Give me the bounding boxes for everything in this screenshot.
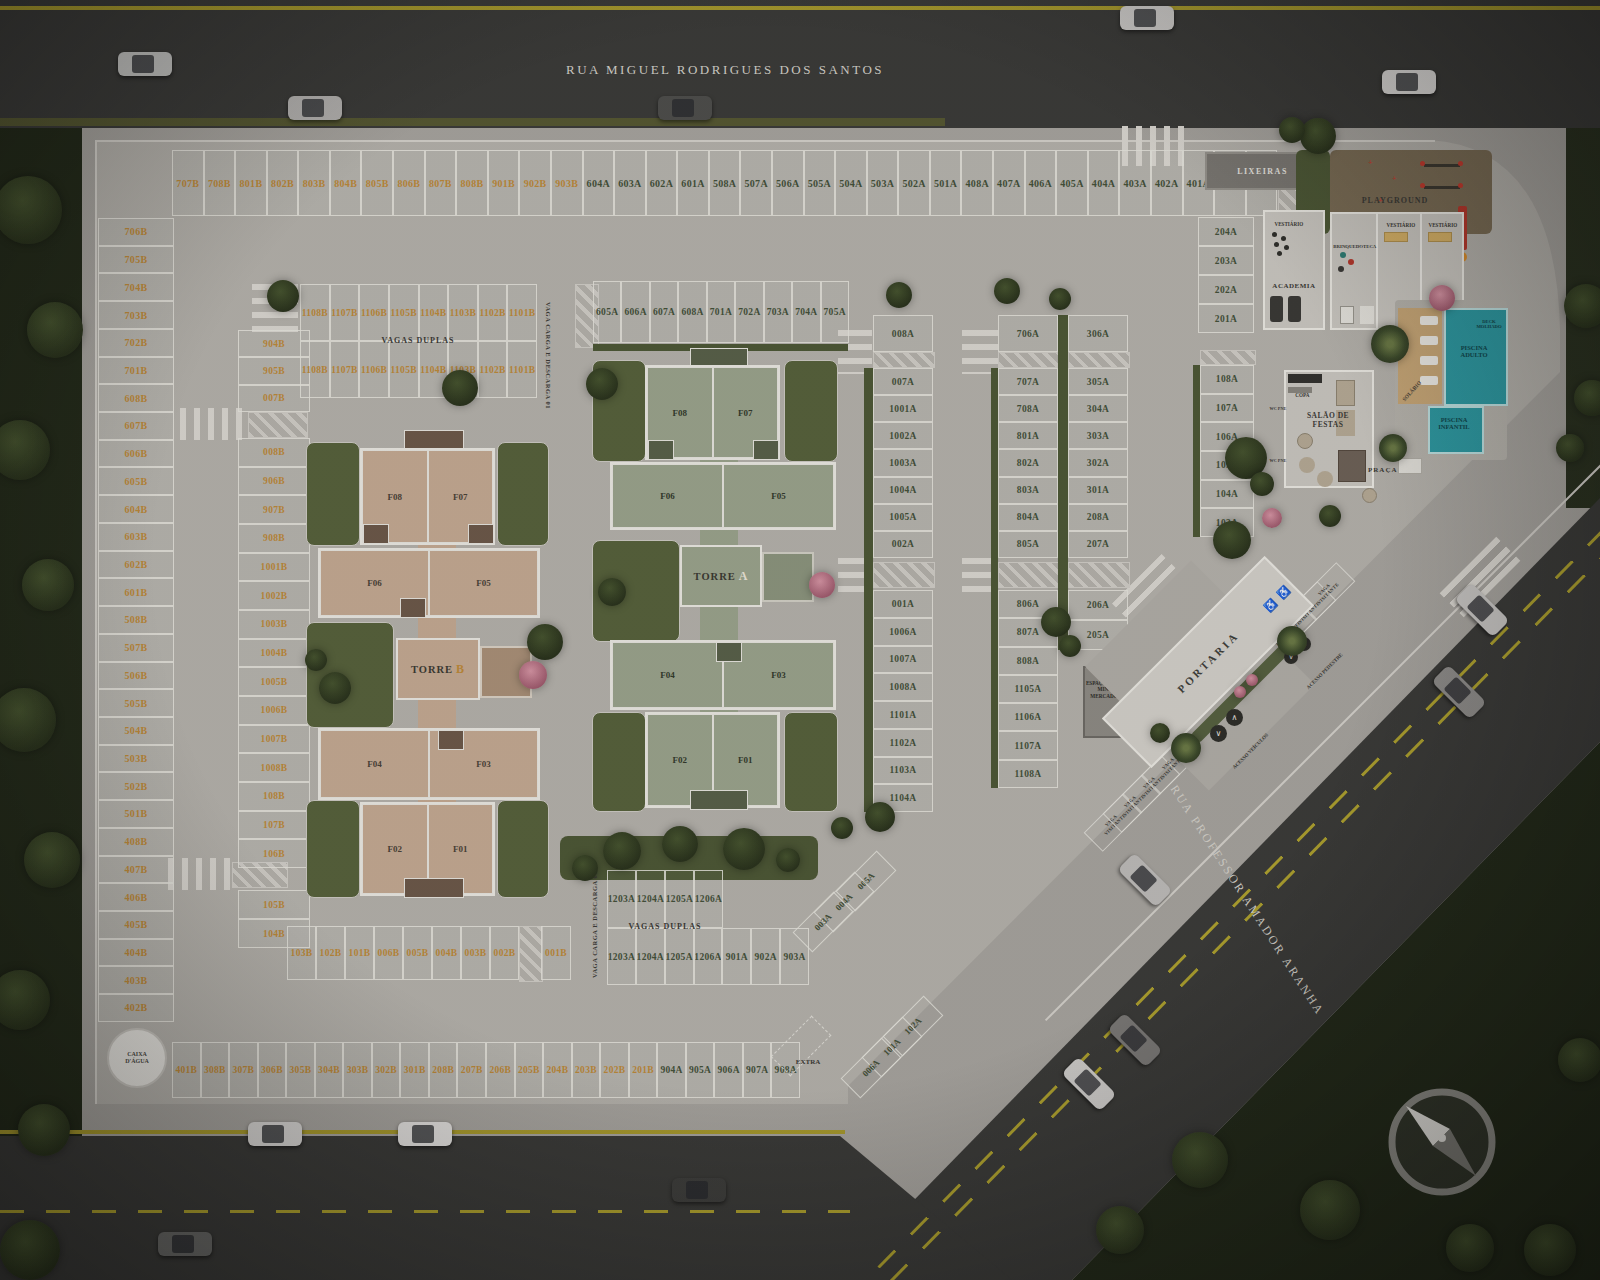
tree	[1096, 1206, 1144, 1254]
torre-b-label: TORRE B	[398, 640, 478, 698]
parking-stall: 1106A	[998, 703, 1058, 731]
brinquedoteca-label: BRINQUEDOTECA	[1333, 244, 1376, 249]
parking-stall: 1108A	[998, 760, 1058, 788]
parking-stall: 1205A	[665, 870, 694, 928]
tree	[1300, 1180, 1360, 1240]
salao-de-festas-label: SALÃO DE FESTAS	[1300, 412, 1356, 429]
parking-stall: 101B	[345, 926, 374, 980]
flower-bush	[809, 572, 835, 598]
sofa-icon	[1338, 450, 1366, 482]
tree	[0, 1220, 60, 1280]
hedge	[1193, 365, 1200, 537]
parking-stall: 906B	[238, 467, 310, 496]
parking-stall: 1003A	[873, 449, 933, 476]
tree	[1300, 118, 1336, 154]
parking-stall: 701B	[98, 357, 174, 385]
parking-stall: 1108B	[300, 284, 330, 341]
parking-stall: 1005A	[873, 504, 933, 531]
unit-label: F06	[612, 464, 723, 528]
parking-stall: 104A	[1200, 480, 1254, 509]
parking-stall: 305A	[1068, 368, 1128, 395]
parking-stall: 001B	[541, 926, 571, 980]
parking-col-left: 706B705B704B703B702B701B608B607B606B605B…	[98, 218, 174, 1022]
parking-duplas1-row1: 1108B1107B1106B1105B1104B1103B1102B1101B	[300, 284, 537, 341]
lounger-icon	[1420, 316, 1438, 325]
parking-stall: 807B	[425, 150, 457, 216]
parking-stall: 606B	[98, 440, 174, 468]
vestiario-label: VESTIÁRIO	[1275, 221, 1304, 226]
fence-top	[95, 140, 1435, 142]
torre-letter: A	[739, 569, 749, 584]
flower-bush	[519, 661, 547, 689]
parking-stall: 1003B	[238, 610, 310, 639]
parking-stall: 404A	[1088, 150, 1120, 216]
parking-stall: 308B	[201, 1042, 230, 1098]
car	[1382, 70, 1436, 94]
parking-stall: 107B	[238, 811, 310, 840]
parking-stall: 1102B	[478, 284, 508, 341]
parking-stall: 201B	[629, 1042, 658, 1098]
parking-stall: 306A	[1068, 315, 1128, 352]
parking-stall: 706B	[98, 218, 174, 246]
parking-stall: 1008A	[873, 673, 933, 701]
tree	[1059, 635, 1081, 657]
lawn	[784, 360, 838, 462]
parking-stall: 202A	[1198, 275, 1254, 304]
compass	[1382, 1082, 1502, 1202]
parking-stall: 705A	[821, 281, 849, 343]
parking-stall: 901A	[722, 928, 751, 985]
car	[672, 1178, 726, 1202]
no-parking-hatch	[1068, 562, 1130, 588]
parking-stall: 408A	[961, 150, 993, 216]
parking-stall: 402A	[1151, 150, 1183, 216]
parking-stall: 908B	[238, 524, 310, 553]
car-windshield	[672, 99, 694, 117]
parking-stall: 702A	[735, 281, 763, 343]
parking-stall: 701A	[707, 281, 735, 343]
wc-pne-label: WC PNE	[1270, 407, 1287, 411]
yellow-dash-bottom	[0, 1210, 850, 1213]
parking-stall: 207A	[1068, 531, 1128, 558]
tree	[1319, 505, 1341, 527]
parking-stall: 1008B	[238, 753, 310, 782]
parking-stall: 501B	[98, 800, 174, 828]
parking-stall: 203A	[1198, 246, 1254, 275]
street-name-top: RUA MIGUEL RODRIGUES DOS SANTOS	[500, 62, 950, 78]
parking-stall: 302A	[1068, 449, 1128, 476]
torre-a-block-upper: F06 F05	[610, 462, 836, 530]
parking-stall: 608A	[678, 281, 706, 343]
crosswalk	[180, 408, 244, 440]
tree	[1279, 117, 1305, 143]
parking-stall: 604A	[583, 150, 615, 216]
parking-stall: 507A	[740, 150, 772, 216]
parking-stall: 1107B	[330, 284, 360, 341]
parking-stall: 1105B	[389, 341, 419, 398]
round-table-icon	[1297, 433, 1313, 449]
parking-stall: 303B	[343, 1042, 372, 1098]
roof-notch	[753, 440, 779, 460]
parking-stall: 903B	[551, 150, 583, 216]
parking-stall: 505B	[98, 689, 174, 717]
no-parking-hatch	[248, 412, 308, 438]
parking-stall: 408B	[98, 828, 174, 856]
parking-stall: 801A	[998, 422, 1058, 449]
parking-stall: 103B	[287, 926, 316, 980]
tree	[305, 649, 327, 671]
parking-stall: 502B	[98, 772, 174, 800]
tree	[319, 672, 351, 704]
parking-stall: 707A	[998, 368, 1058, 395]
parking-stall: 002A	[873, 531, 933, 558]
parking-stall: 603B	[98, 523, 174, 551]
parking-stall: 802B	[267, 150, 299, 216]
car	[288, 96, 342, 120]
no-parking-hatch	[519, 926, 543, 982]
carga-descarga-01-label: VAGA CARGA E DESCARGA 01	[545, 271, 552, 441]
tree	[994, 278, 1020, 304]
parking-duplas2-row1: 1203A1204A1205A1206A	[607, 870, 723, 928]
parking-stall-001b: 001B	[541, 926, 571, 980]
parking-stall: 204A	[1198, 217, 1254, 246]
parking-stall: 1102A	[873, 729, 933, 757]
parking-stall: 607B	[98, 412, 174, 440]
tree	[776, 848, 800, 872]
parking-stall: 902B	[519, 150, 551, 216]
tree	[1250, 472, 1274, 496]
hedge	[864, 368, 873, 812]
tree	[1556, 434, 1584, 462]
parking-stall: 303A	[1068, 422, 1128, 449]
parking-stall: 002B	[490, 926, 519, 980]
car-windshield	[1396, 73, 1418, 91]
wc-fixtures-icon	[1340, 306, 1354, 324]
parking-stall: 402B	[98, 994, 174, 1022]
parking-stall: 803A	[998, 477, 1058, 504]
parking-stall: 507B	[98, 634, 174, 662]
torre-b-block-lower: F04 F03	[318, 728, 540, 800]
parking-stall: 403B	[98, 966, 174, 994]
parking-stall: 508A	[709, 150, 741, 216]
flower-bush	[1234, 686, 1246, 698]
tree	[1446, 1224, 1494, 1272]
parking-stall: 407A	[993, 150, 1025, 216]
parking-stall: 704A	[792, 281, 820, 343]
parking-stall: 208A	[1068, 504, 1128, 531]
bench-icon	[1398, 458, 1422, 474]
parking-stall: 401B	[172, 1042, 201, 1098]
parking-stall: 1103A	[873, 757, 933, 785]
parking-stall: 504A	[835, 150, 867, 216]
parking-stall: 207B	[457, 1042, 486, 1098]
unit-label: F04	[320, 730, 429, 798]
no-parking-hatch	[1200, 350, 1256, 365]
unit-label: F04	[612, 642, 723, 708]
car-windshield	[132, 55, 154, 73]
parking-stall: 1206A	[694, 870, 723, 928]
academia-label: ACADEMIA	[1263, 282, 1325, 290]
roof-notch	[690, 790, 748, 810]
vagas-duplas-label: VAGAS DUPLAS	[595, 922, 735, 931]
tree	[572, 855, 598, 881]
parking-stall: 1101B	[507, 284, 537, 341]
no-parking-hatch	[873, 562, 935, 588]
parking-stall: 602A	[646, 150, 678, 216]
parking-stall: 405B	[98, 911, 174, 939]
parking-stall: 604B	[98, 495, 174, 523]
parking-stall: 503A	[867, 150, 899, 216]
parking-stall: 506A	[772, 150, 804, 216]
parking-col-a1: 008A	[873, 315, 933, 352]
parking-stall: 1107B	[330, 341, 360, 398]
parking-row-b-bottom: 103B102B101B006B005B004B003B002B	[287, 926, 519, 980]
parking-duplas2-row2: 1203A1204A1205A1206A901A902A903A	[607, 928, 809, 985]
lawn	[306, 442, 360, 546]
parking-stall: 504B	[98, 717, 174, 745]
parking-stall: 1007B	[238, 725, 310, 754]
car	[158, 1232, 212, 1256]
deck-molhado-label: DECK MOLHADO	[1476, 319, 1502, 330]
site-plan: RUA MIGUEL RODRIGUES DOS SANTOS RUA PROF…	[0, 0, 1600, 1280]
yellow-line-top	[0, 6, 1600, 10]
parking-stall: 602B	[98, 551, 174, 579]
tree	[723, 828, 765, 870]
tree	[586, 368, 618, 400]
roof-notch	[468, 524, 494, 544]
parking-stall: 1205A	[665, 928, 694, 985]
car	[1120, 6, 1174, 30]
wall	[1376, 213, 1378, 329]
parking-stall: 204B	[543, 1042, 572, 1098]
roof-notch	[363, 524, 389, 544]
copa-label: COPA	[1295, 392, 1309, 397]
parking-stall: 304A	[1068, 395, 1128, 422]
tree	[831, 817, 853, 839]
parking-stall: 1006A	[873, 618, 933, 646]
tree	[1213, 521, 1251, 559]
access-arrow-icon: ∨	[1210, 725, 1227, 742]
torre-b-block-upper: F06 F05	[318, 548, 540, 618]
toy-dots-icon	[1340, 252, 1346, 258]
flower-bush	[1246, 674, 1258, 686]
torre-a-core: TORRE A	[680, 545, 762, 607]
parking-stall: 008A	[873, 315, 933, 352]
tree	[603, 832, 641, 870]
round-table-icon	[1362, 488, 1377, 503]
parking-stall: 505A	[804, 150, 836, 216]
parking-stall: 1002A	[873, 422, 933, 449]
unit-label: F05	[429, 550, 538, 616]
extra-label: EXTRA	[786, 1058, 830, 1066]
parking-stall: 605A	[593, 281, 621, 343]
parking-stall: 502A	[898, 150, 930, 216]
parking-stall: 003B	[461, 926, 490, 980]
wc-pne-label: WC PNE	[1270, 459, 1287, 463]
palm-tree	[1171, 733, 1201, 763]
parking-stall: 801B	[235, 150, 267, 216]
parking-stall: 704B	[98, 273, 174, 301]
lawn	[497, 442, 549, 546]
parking-stall: 108B	[238, 782, 310, 811]
gym-weights-icon	[1272, 232, 1277, 237]
car-windshield	[1134, 9, 1156, 27]
roof-notch	[404, 878, 464, 898]
parking-stall: 708B	[204, 150, 236, 216]
parking-stall: 203B	[572, 1042, 601, 1098]
parking-stall: 1006B	[238, 696, 310, 725]
parking-col-a1: 001A1006A1007A1008A1101A1102A1103A1104A	[873, 590, 933, 812]
parking-stall: 1108B	[300, 341, 330, 398]
parking-stall: 107A	[1200, 394, 1254, 423]
parking-stall: 808B	[456, 150, 488, 216]
parking-col-a2: 706A	[998, 315, 1058, 352]
portaria-label: PORTARIA	[1175, 629, 1241, 695]
tree	[27, 302, 83, 358]
parking-stall: 708A	[998, 395, 1058, 422]
unit-label: F05	[723, 464, 834, 528]
parking-stall: 1103B	[448, 284, 478, 341]
parking-stall: 301B	[400, 1042, 429, 1098]
parking-stall: 105B	[238, 890, 310, 919]
parking-stall: 601B	[98, 578, 174, 606]
roof-notch	[438, 730, 464, 750]
parking-col-a1: 007A1001A1002A1003A1004A1005A002A	[873, 368, 933, 558]
parking-stall: 607A	[650, 281, 678, 343]
lawn	[784, 712, 838, 812]
parking-stall: 804B	[330, 150, 362, 216]
roof-notch	[648, 440, 674, 460]
caixa-dagua-label: CAIXA D'ÁGUA	[117, 1051, 157, 1065]
tree	[1558, 1038, 1600, 1082]
tree	[22, 559, 74, 611]
tree	[598, 578, 626, 606]
parking-stall: 1204A	[636, 928, 665, 985]
parking-stall: 706A	[998, 315, 1058, 352]
car	[248, 1122, 302, 1146]
lawn	[592, 712, 646, 812]
tree	[886, 282, 912, 308]
parking-stall: 506B	[98, 662, 174, 690]
parking-stall: 306B	[258, 1042, 287, 1098]
tree	[442, 370, 478, 406]
tree	[267, 280, 299, 312]
caixa-dagua: CAIXA D'ÁGUA	[107, 1028, 167, 1088]
no-parking-hatch	[1068, 352, 1130, 368]
tree	[1524, 1224, 1576, 1276]
flower-bush	[1262, 508, 1282, 528]
palm-tree	[1277, 626, 1307, 656]
parking-stall: 001A	[873, 590, 933, 618]
roof-notch	[400, 598, 426, 618]
parking-stall: 603A	[614, 150, 646, 216]
tree	[1564, 284, 1600, 328]
parking-row-bottom: 401B308B307B306B305B304B303B302B301B208B…	[172, 1042, 800, 1098]
parking-stall: 403A	[1119, 150, 1151, 216]
parking-stall: 606A	[621, 281, 649, 343]
treadmill-icon	[1270, 296, 1283, 322]
parking-stall: 1001B	[238, 553, 310, 582]
no-parking-hatch	[873, 352, 935, 368]
car	[118, 52, 172, 76]
parking-stall: 805B	[361, 150, 393, 216]
tree	[1150, 723, 1170, 743]
parking-stall: 1005B	[238, 667, 310, 696]
tree	[1172, 1132, 1228, 1188]
parking-row-top: 707B708B801B802B803B804B805B806B807B808B…	[172, 150, 1277, 216]
parking-stall: 608B	[98, 384, 174, 412]
parking-stall: 302B	[372, 1042, 401, 1098]
parking-stall: 1203A	[607, 870, 636, 928]
roof-notch	[716, 642, 742, 662]
kitchen-counter-icon	[1288, 374, 1322, 383]
parking-stall: 1102B	[478, 341, 508, 398]
parking-stall: 808A	[998, 647, 1058, 675]
car-windshield	[686, 1181, 708, 1199]
parking-stall: 208B	[429, 1042, 458, 1098]
parking-stall: 206A	[1068, 590, 1128, 620]
parking-stall: 008B	[238, 438, 310, 467]
parking-stall: 501A	[930, 150, 962, 216]
lawn	[306, 800, 360, 898]
parking-stall: 1105A	[998, 675, 1058, 703]
parking-stall: 102B	[316, 926, 345, 980]
parking-stall: 1101A	[873, 701, 933, 729]
play-marker-icon: +	[1368, 158, 1373, 167]
parking-stall: 805A	[998, 531, 1058, 558]
car-windshield	[262, 1125, 284, 1143]
parking-stall: 1004A	[873, 477, 933, 504]
parking-stall: 902A	[751, 928, 780, 985]
play-marker-icon: +	[1378, 196, 1383, 205]
tree	[1049, 288, 1071, 310]
hedge	[1058, 315, 1068, 650]
car	[658, 96, 712, 120]
no-parking-hatch	[998, 562, 1060, 588]
parking-stall: 404B	[98, 939, 174, 967]
hedge	[991, 368, 998, 788]
parking-stall: 907B	[238, 495, 310, 524]
parking-col-inner-mid: 008B906B907B908B1001B1002B1003B1004B1005…	[238, 438, 310, 868]
parking-stall: 005B	[403, 926, 432, 980]
torre-name: TORRE	[411, 664, 453, 675]
torre-a-label: TORRE A	[682, 547, 760, 605]
crosswalk	[168, 858, 230, 890]
car	[398, 1122, 452, 1146]
car-windshield	[302, 99, 324, 117]
lawn	[497, 800, 549, 898]
car-windshield	[172, 1235, 194, 1253]
play-marker-icon: +	[1392, 174, 1397, 183]
parking-stall: 201A	[1198, 304, 1254, 333]
torre-name: TORRE	[694, 571, 736, 582]
parking-col-a3: 306A	[1068, 315, 1128, 352]
parking-stall: 905A	[686, 1042, 715, 1098]
parking-stall: 1002B	[238, 581, 310, 610]
parking-stall: 1004B	[238, 639, 310, 668]
bench-icon	[1384, 232, 1408, 242]
fence-left	[95, 140, 97, 1104]
parking-stall: 301A	[1068, 477, 1128, 504]
tree	[865, 802, 895, 832]
parking-stall: 406B	[98, 883, 174, 911]
parking-stall: 1101B	[507, 341, 537, 398]
parking-stall: 907A	[743, 1042, 772, 1098]
tree	[527, 624, 563, 660]
parking-stall: 1001A	[873, 395, 933, 422]
parking-stall: 601A	[677, 150, 709, 216]
parking-stall: 705B	[98, 246, 174, 274]
